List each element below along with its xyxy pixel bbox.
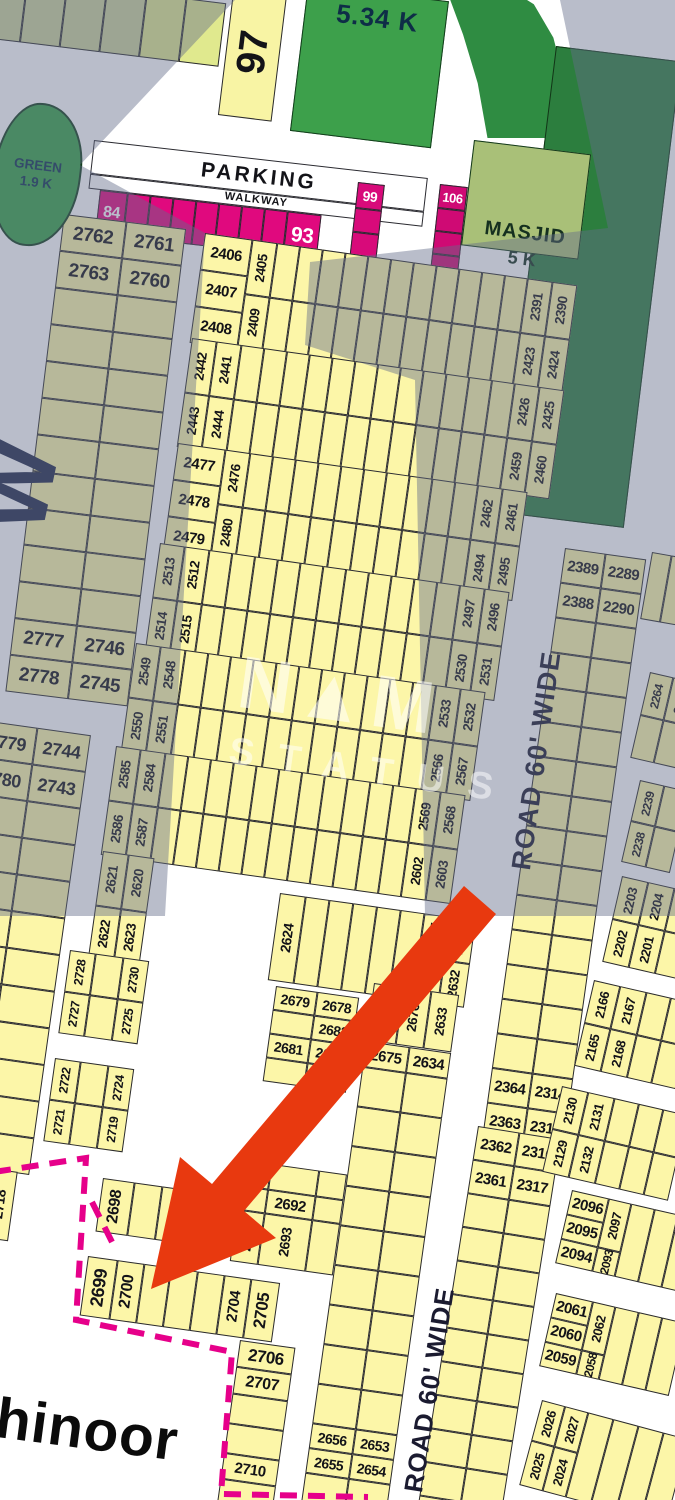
plot-number-label: 2569: [416, 802, 433, 832]
plot-number-label: 2721: [51, 1109, 67, 1136]
plot-number-label: 2095: [565, 1220, 599, 1242]
plot-number-label: 2407: [204, 282, 237, 301]
plot-cell: [0, 1131, 34, 1175]
plot-number-label: 2391: [528, 293, 545, 323]
plot-97: 97: [218, 0, 288, 122]
plot-cell: [179, 0, 227, 67]
plot-number-label: 2096: [571, 1196, 605, 1218]
plot-number-label: 2718: [0, 1189, 8, 1220]
plot-number-label: 2762: [72, 224, 114, 248]
plot-number-label: 2778: [18, 665, 60, 689]
plot-number-label: 2682: [318, 1021, 349, 1039]
strip-2699: 2699270027042705: [80, 1256, 280, 1342]
plot-number-label: 2603: [433, 860, 450, 890]
block-2202: 2203220222042201: [602, 876, 675, 985]
plot-number-label: 93: [290, 223, 315, 246]
plot-number-label: 2699: [87, 1268, 110, 1308]
plot-number-label: 2677: [376, 999, 393, 1029]
plot-cell: [183, 1190, 218, 1247]
plot-number-label: 2743: [36, 775, 76, 798]
plot-number-label: 2760: [128, 269, 170, 293]
plot-cell: [312, 1384, 361, 1430]
label-masjid-size: 5 K: [507, 248, 537, 269]
plot-number-label: 2389: [566, 559, 599, 578]
plot-number-label: 2388: [561, 593, 594, 612]
plot-number-label: 2692: [274, 1195, 307, 1214]
plot-cell: [351, 1106, 400, 1152]
plot-number-label: 2024: [550, 1457, 570, 1486]
plot-cell: [581, 692, 626, 732]
estate-name-line2-partial: sta: [29, 1486, 113, 1500]
plot-number-label: 2678: [321, 998, 352, 1016]
plot-number-label: 2676: [405, 1003, 422, 1033]
plot-cell: [352, 208, 382, 235]
plot-cell: [567, 796, 612, 836]
plot-cell: 2725: [112, 999, 144, 1044]
plot-number-label: 2621: [103, 865, 120, 895]
plot-number-label: 2724: [110, 1074, 126, 1101]
plot-number-label: 2706: [247, 1346, 285, 1368]
plot-number-label: 99: [362, 189, 378, 205]
block-2727: 2728272727302725: [58, 950, 149, 1044]
plot-number-label: 2763: [67, 261, 109, 285]
plot-number-label: 2585: [116, 760, 133, 790]
plot-cell: [552, 900, 597, 940]
plot-number-label: 2513: [160, 557, 177, 587]
plot-cell: 2389: [560, 548, 605, 588]
plot-number-label: 2568: [441, 806, 458, 836]
plot-cell: 2779: [0, 720, 37, 764]
plot-number-label: 2129: [551, 1139, 570, 1168]
plot-number-label: 2705: [251, 1292, 273, 1330]
plot-number-label: 2168: [609, 1039, 628, 1068]
plot-cell: [304, 1063, 349, 1093]
plot-number-label: 2531: [477, 657, 494, 687]
plot-cell: [367, 1311, 414, 1356]
plot-number-label: 2264: [648, 683, 665, 710]
plot-cell: 2388: [555, 583, 600, 623]
plot-number-label: 2165: [583, 1033, 602, 1062]
plot-number-label: 2761: [133, 232, 175, 256]
plot-number-label: 2656: [317, 1430, 348, 1448]
plot-cell: [542, 970, 587, 1010]
plot-cell: 106: [437, 184, 468, 211]
plot-number-label: 2425: [540, 401, 557, 431]
plot-number-label: 2605: [426, 922, 443, 952]
plot-number-label: 2409: [245, 308, 262, 338]
plot-number-label: 2725: [120, 1008, 136, 1035]
plot-cell: [547, 935, 592, 975]
plot-number-label: 97: [230, 29, 275, 77]
block-2026: 2026202520272024: [519, 1400, 675, 1500]
block-2238: 22392238: [621, 780, 675, 873]
plot-cell: [497, 999, 542, 1039]
plot-cell: 2730: [118, 958, 150, 1003]
block-2130: 2130212921312132: [542, 1086, 675, 1201]
plot-number-label: 2515: [177, 615, 194, 645]
plot-number-label: 2026: [538, 1409, 558, 1438]
plot-number-label: 2238: [629, 831, 646, 858]
plot-number-label: 2202: [611, 929, 630, 958]
plot-cell: [435, 208, 465, 234]
plot-cell: 2364: [487, 1068, 532, 1108]
plot-cell: [511, 895, 556, 935]
block-2721: 2722272127242719: [43, 1058, 134, 1152]
plot-number-label: 2062: [589, 1314, 608, 1343]
plot-number-label: 2586: [108, 815, 125, 845]
plot-number-label: 2654: [356, 1460, 387, 1478]
plot-number-label: 2624: [278, 923, 296, 954]
plot-number-label: 2061: [555, 1299, 589, 1321]
plot-number-label: 2730: [125, 966, 141, 993]
plot-cell: [263, 1057, 308, 1087]
plot-number-label: 2681: [273, 1039, 304, 1057]
plot-cell: [361, 1350, 408, 1395]
plot-map-canvas: 97PARKINGWALKWAY849395949910610027622763…: [0, 0, 675, 1500]
plot-cell: [389, 1152, 436, 1197]
plot-number-label: 2094: [559, 1244, 593, 1266]
plot-number-label: 2675: [369, 1047, 402, 1066]
plot-cell: [323, 1304, 372, 1350]
plot-cell: 2724: [103, 1066, 135, 1111]
plot-cell: 2718: [0, 1168, 18, 1241]
plot-number-label: 2317: [516, 1176, 549, 1196]
block-2621: 2621262226202623: [88, 851, 155, 967]
green-area-label: 1.9 K: [19, 173, 53, 194]
plot-cell: [318, 1344, 367, 1390]
plot-number-label: 2132: [577, 1145, 596, 1174]
plot-cell: [329, 1265, 378, 1311]
plot-number-label: 2704: [224, 1290, 243, 1323]
plot-number-label: 2406: [210, 245, 243, 264]
plot-number-label: 2693: [276, 1227, 294, 1258]
plot-number-label: 2727: [66, 1001, 82, 1028]
plot-cell: [461, 1468, 508, 1500]
plot-cell: [373, 1271, 420, 1316]
plot-number-label: 2130: [561, 1096, 580, 1125]
plot-cell: [432, 231, 462, 257]
plot-cell: [335, 1225, 384, 1271]
plot-number-label: 2602: [408, 857, 425, 887]
plot-number-label: 2441: [217, 356, 234, 386]
plot-number-label: 2719: [105, 1116, 121, 1143]
plot-number-label: 2744: [42, 738, 82, 761]
top-left-plots: [0, 0, 226, 67]
plot-number-label: 2443: [184, 407, 201, 437]
plot-number-label: 2461: [503, 503, 520, 533]
plot-number-label: 2289: [607, 564, 640, 583]
plot-cell: [586, 658, 631, 698]
plot-number-label: 2620: [129, 869, 146, 899]
plot-number-label: 2679: [280, 992, 311, 1010]
plot-number-label: 2530: [452, 654, 469, 684]
plot-number-label: 2201: [637, 935, 656, 964]
plot-number-label: 2265: [672, 688, 675, 715]
plot-cell: [537, 1004, 582, 1044]
plot-cell: [346, 1146, 395, 1192]
plot-cell: [0, 1021, 50, 1065]
plot-number-label: 2566: [428, 754, 445, 784]
plot-number-label: 2059: [543, 1347, 577, 1369]
plot-cell: 2778: [5, 655, 72, 699]
plot-cell: [492, 1033, 537, 1073]
plot-number-label: 2364: [493, 1078, 526, 1097]
plot-cell: 2604: [444, 917, 476, 964]
plot-number-label: 2204: [647, 892, 666, 921]
plot-number-label: 2097: [605, 1211, 624, 1240]
plot-number-label: 2442: [192, 352, 209, 382]
plot-cell: [591, 623, 636, 663]
plot-number-label: 2426: [515, 398, 532, 428]
plot-number-label: 2166: [593, 990, 612, 1019]
plot-number-label: 2680: [315, 1045, 346, 1063]
plot-cell: [395, 1112, 442, 1157]
plot-cell: [576, 727, 621, 767]
plot-number-label: 2710: [233, 1460, 266, 1479]
plot-cell: 2290: [596, 588, 641, 628]
strip-2706: 270627072710: [216, 1340, 295, 1500]
plot-number-label: 2093: [598, 1249, 615, 1276]
plot-number-label: 2623: [122, 923, 139, 953]
plot-number-label: 2496: [485, 603, 502, 633]
plot-cell: [316, 1171, 347, 1201]
plot-number-label: 2548: [161, 661, 178, 691]
plot-number-label: 106: [442, 190, 464, 205]
plot-number-label: 2780: [0, 767, 22, 790]
plot-number-label: 2512: [185, 561, 202, 591]
plot-cell: 99: [355, 182, 385, 211]
plot-number-label: 2476: [225, 464, 242, 494]
plot-number-label: 2495: [495, 557, 512, 587]
plot-number-label: 2700: [117, 1274, 138, 1309]
plot-cell: [240, 1160, 271, 1190]
plot-number-label: 2362: [479, 1136, 512, 1156]
block-2061: 20612060205920622058: [539, 1293, 675, 1396]
plot-cell: 2693: [258, 1213, 313, 1271]
plot-number-label: 2779: [0, 731, 27, 754]
plot-number-label: 2549: [136, 657, 153, 687]
plot-number-label: 2390: [553, 296, 570, 326]
plot-number-label: 2405: [252, 254, 269, 284]
plot-number-label: 2444: [209, 410, 226, 440]
plot-number-label: 2459: [507, 452, 524, 482]
plot-number-label: 2167: [619, 996, 638, 1025]
plot-number-label: 2532: [461, 703, 478, 733]
plot-number-label: 2633: [433, 1007, 450, 1037]
block-2718: 2718: [0, 1168, 18, 1241]
plot-number-label: 2027: [562, 1415, 582, 1444]
plot-number-label: 2478: [177, 492, 210, 511]
plot-number-label: 2728: [72, 959, 88, 986]
plot-number-label: 2290: [602, 599, 635, 618]
block-2166: 2166216521672168: [574, 980, 675, 1089]
plot-cell: [572, 762, 617, 802]
plot-number-label: 2698: [105, 1189, 126, 1224]
plot-cell: [400, 1073, 447, 1118]
plot-number-label: 2361: [474, 1170, 507, 1190]
plot-cell: 2289: [601, 554, 646, 594]
block-2264: 22642265: [630, 672, 675, 769]
plot-cell: 2745: [68, 662, 132, 706]
plot-cell: [533, 1039, 578, 1079]
plot-number-label: 2777: [22, 628, 64, 652]
plot-number-label: 2584: [141, 764, 158, 794]
plot-cell: [502, 964, 547, 1004]
plot-number-label: 2587: [133, 818, 150, 848]
plot-number-label: 2653: [359, 1436, 390, 1454]
plot-number-label: 2550: [128, 712, 145, 742]
plot-number-label: 2460: [532, 455, 549, 485]
plot-number-label: 2745: [79, 673, 121, 697]
plot-cell: 97: [218, 0, 288, 122]
plot-number-label: 2131: [587, 1102, 606, 1131]
plot-cell: [557, 866, 602, 906]
plot-number-label: 2462: [478, 499, 495, 529]
plot-number-label: 2203: [621, 886, 640, 915]
plot-number-label: 2567: [453, 757, 470, 787]
plot-number-label: 2551: [153, 715, 170, 745]
plot-cell: [340, 1186, 389, 1232]
plot-number-label: 2494: [470, 554, 487, 584]
plot-number-label: 2408: [199, 318, 232, 337]
plot-number-label: 2514: [152, 612, 169, 642]
plot-cell: [384, 1192, 431, 1237]
plot-number-label: 2424: [545, 350, 562, 380]
plot-number-label: 2497: [460, 599, 477, 629]
block-2692: 269426922693: [230, 1160, 347, 1275]
plot-number-label: 2707: [244, 1374, 279, 1395]
plot-cell: [0, 1058, 45, 1102]
plot-number-label: 2655: [313, 1454, 344, 1472]
plot-cell: [356, 1390, 403, 1435]
plot-number-label: 2025: [527, 1451, 547, 1480]
plot-cell: [378, 1231, 425, 1276]
plot-cell: [562, 831, 607, 871]
plot-cell: [507, 929, 552, 969]
plot-cell: [0, 1094, 39, 1138]
estate-name-partial: hinoor: [0, 1390, 182, 1470]
plot-cell: [357, 1067, 406, 1113]
strip-2698: 2698: [95, 1178, 217, 1248]
plot-number-label: 2477: [183, 455, 216, 474]
block-2679: 26792681267826822680: [263, 986, 360, 1093]
plot-number-label: 2239: [639, 790, 656, 817]
plot-number-label: 2694: [238, 1222, 256, 1253]
plot-number-label: 2060: [549, 1323, 583, 1345]
plot-number-label: 2533: [436, 699, 453, 729]
plot-cell: 2719: [97, 1107, 129, 1152]
plot-number-label: 2622: [96, 920, 113, 950]
plot-number-label: 2423: [520, 347, 537, 377]
plot-number-label: 2746: [83, 636, 125, 660]
plot-number-label: 2604: [452, 926, 469, 956]
plot-number-label: 2480: [218, 518, 235, 548]
plot-number-label: 2722: [57, 1067, 73, 1094]
block-2096: 20962095209420972093: [555, 1190, 675, 1293]
plot-number-label: 2634: [412, 1053, 445, 1072]
plot-number-label: 2058: [582, 1352, 599, 1379]
